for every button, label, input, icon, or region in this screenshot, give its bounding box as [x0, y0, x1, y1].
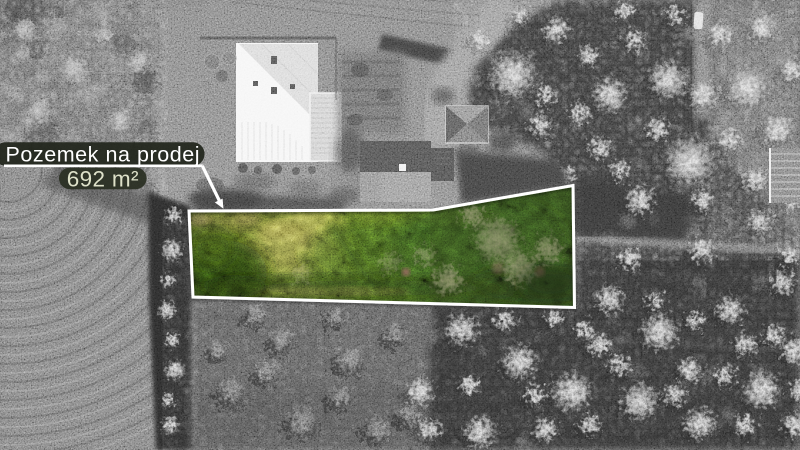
svg-text:692 m²: 692 m²	[67, 166, 139, 191]
svg-text:Pozemek na prodej: Pozemek na prodej	[6, 143, 201, 167]
